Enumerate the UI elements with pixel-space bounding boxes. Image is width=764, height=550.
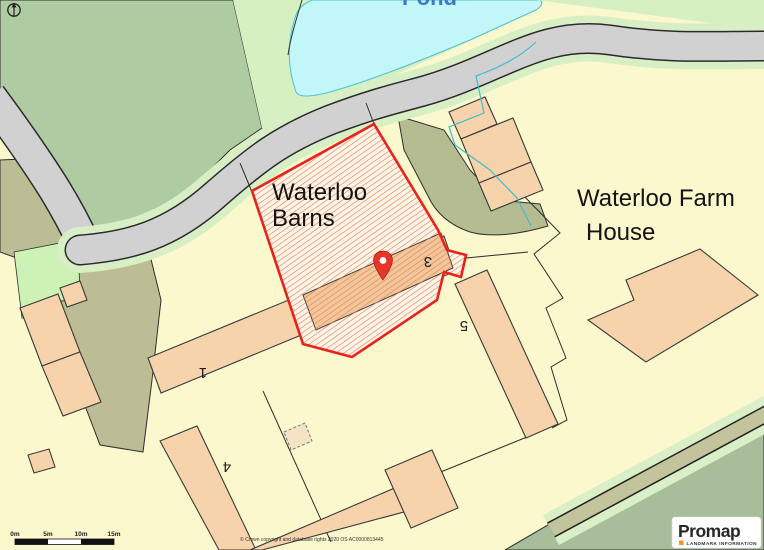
- farm-name-line2: House: [586, 219, 655, 246]
- scale-tick: 10m: [74, 531, 87, 538]
- promap-logo: Promap LANDMARK INFORMATION: [672, 517, 761, 548]
- promap-logo-text: Promap: [678, 521, 740, 541]
- brand-bullet-icon: [679, 541, 684, 546]
- building-number-5: 5: [460, 317, 468, 334]
- scale-tick: 0m: [10, 531, 20, 538]
- scale-tick: 15m: [107, 531, 120, 538]
- plot-name-line2: Barns: [272, 205, 335, 232]
- pond-label: Pond: [402, 0, 457, 10]
- map-viewport: Pond Waterloo Barns Waterloo Farm House …: [0, 0, 764, 550]
- building-number-3: 3: [424, 253, 432, 270]
- farm-name-line1: Waterloo Farm: [577, 185, 735, 212]
- plot-name-line1: Waterloo: [272, 179, 367, 206]
- map-canvas[interactable]: Pond Waterloo Barns Waterloo Farm House …: [0, 0, 764, 550]
- scale-tick: 5m: [43, 531, 53, 538]
- building-number-4: 4: [223, 458, 231, 475]
- building-number-1: 1: [199, 364, 207, 381]
- copyright-text: © Crown copyright and database rights 20…: [240, 536, 384, 543]
- landmark-tagline: LANDMARK INFORMATION: [687, 541, 758, 547]
